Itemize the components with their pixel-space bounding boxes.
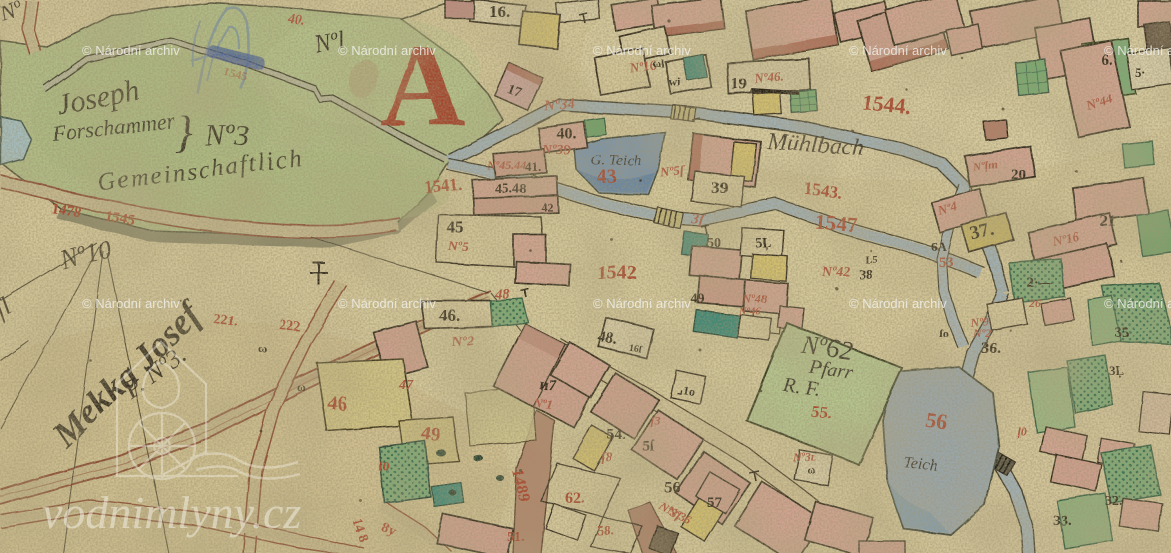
svg-text:© Národní archiv: © Národní archiv <box>1104 43 1171 58</box>
svg-text:vodnimlyny.cz: vodnimlyny.cz <box>42 487 301 538</box>
svg-text:© Národní archiv: © Národní archiv <box>593 43 691 58</box>
svg-text:© Národní archiv: © Národní archiv <box>593 296 691 311</box>
svg-text:© Národní archiv: © Národní archiv <box>338 43 436 58</box>
svg-text:© Národní archiv: © Národní archiv <box>849 43 947 58</box>
svg-text:© Národní archiv: © Národní archiv <box>338 296 436 311</box>
svg-text:© Národní archiv: © Národní archiv <box>1104 296 1171 311</box>
svg-text:© Národní archiv: © Národní archiv <box>82 296 180 311</box>
svg-text:© Národní archiv: © Národní archiv <box>849 296 947 311</box>
svg-text:© Národní archiv: © Národní archiv <box>82 43 180 58</box>
